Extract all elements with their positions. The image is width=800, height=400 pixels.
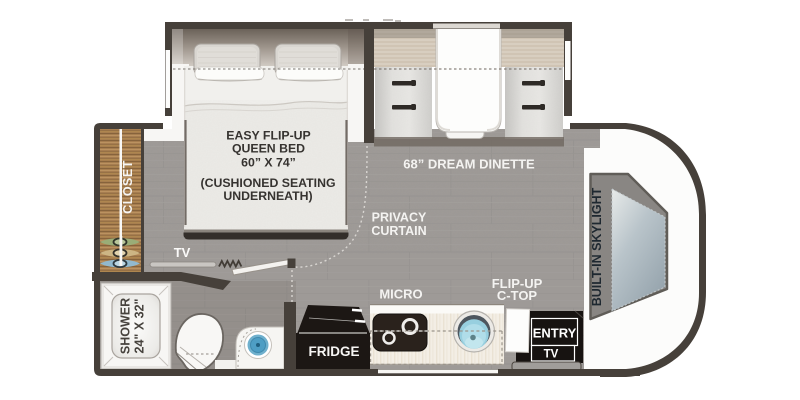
- svg-text:ENTRY: ENTRY: [533, 326, 577, 341]
- svg-text:EASY FLIP-UP: EASY FLIP-UP: [226, 129, 311, 143]
- svg-text:TV: TV: [544, 349, 559, 361]
- svg-text:PRIVACY: PRIVACY: [372, 211, 427, 225]
- svg-text:SHOWER: SHOWER: [119, 298, 133, 354]
- svg-text:TV: TV: [174, 245, 191, 260]
- svg-text:C-TOP: C-TOP: [497, 288, 538, 303]
- svg-text:QUEEN BED: QUEEN BED: [232, 142, 305, 156]
- svg-text:CURTAIN: CURTAIN: [371, 224, 426, 238]
- svg-text:(CUSHIONED SEATING: (CUSHIONED SEATING: [200, 176, 335, 190]
- svg-text:BUILT-IN SKYLIGHT: BUILT-IN SKYLIGHT: [590, 187, 604, 306]
- svg-text:FRIDGE: FRIDGE: [308, 344, 359, 359]
- svg-text:68” DREAM DINETTE: 68” DREAM DINETTE: [403, 157, 535, 172]
- svg-text:MICRO: MICRO: [379, 287, 422, 302]
- svg-text:60” X 74”: 60” X 74”: [241, 156, 296, 170]
- svg-text:UNDERNEATH): UNDERNEATH): [223, 189, 312, 203]
- svg-text:24" X 32": 24" X 32": [133, 298, 147, 353]
- svg-text:CLOSET: CLOSET: [121, 160, 135, 214]
